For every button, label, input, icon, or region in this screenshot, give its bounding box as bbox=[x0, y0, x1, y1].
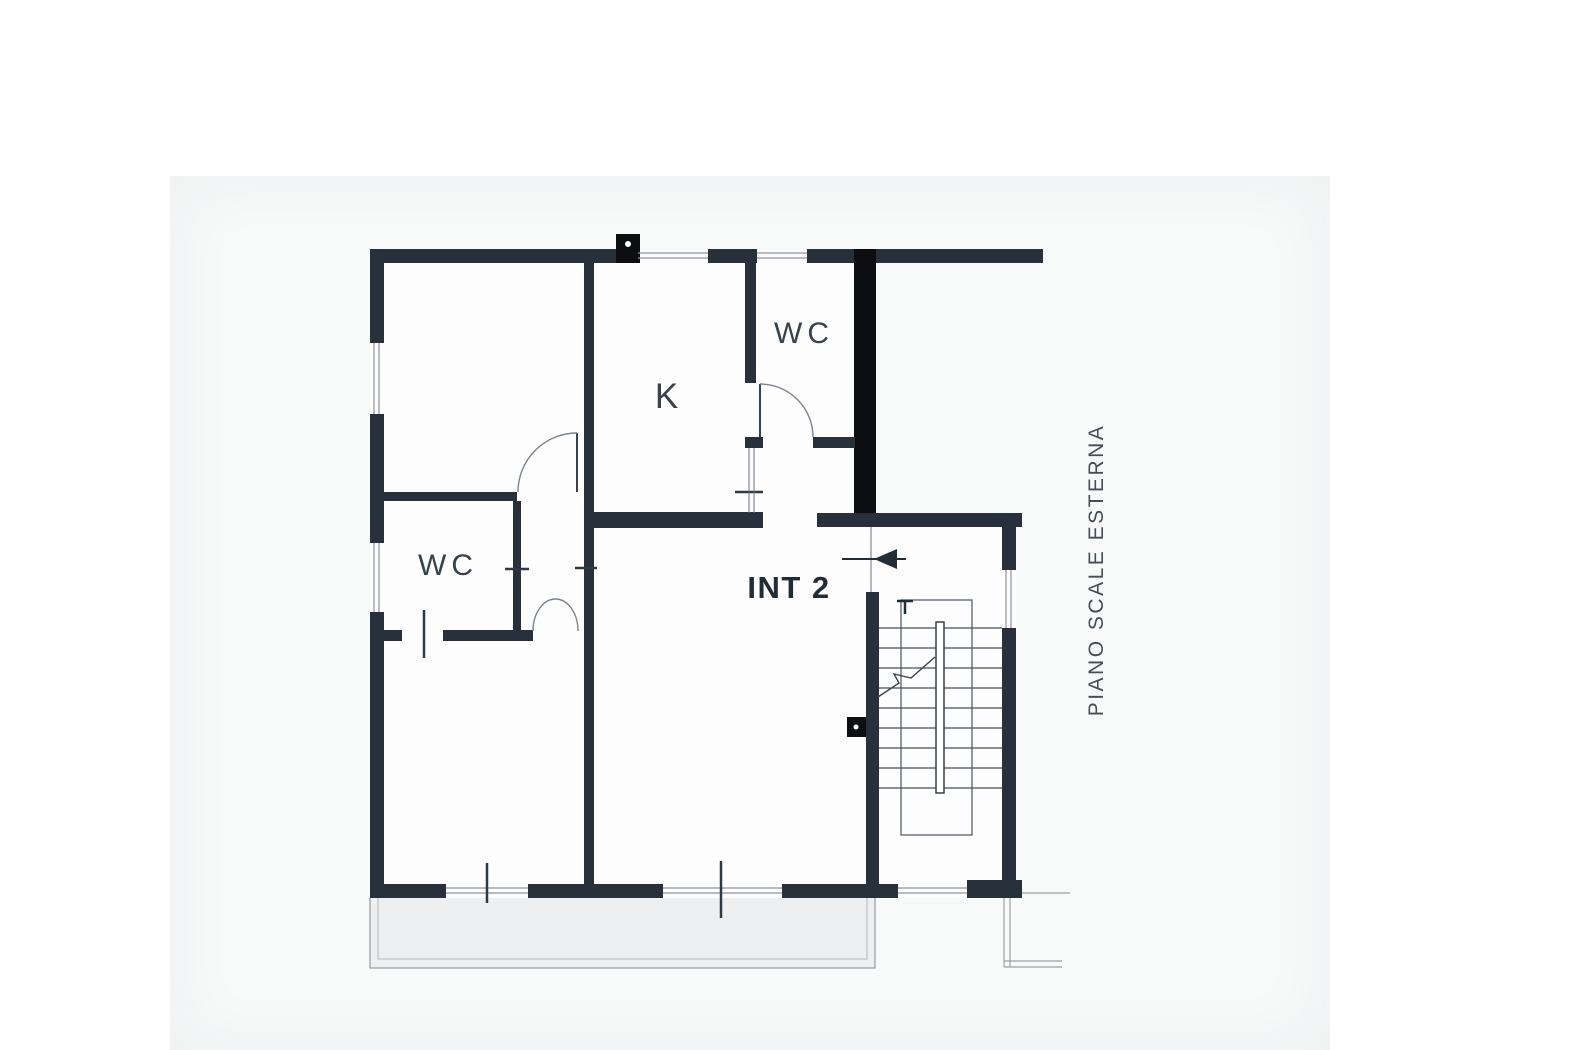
side-note-label: PIANO SCALE ESTERNA bbox=[1085, 424, 1109, 717]
floor-plan-drawing bbox=[0, 0, 1575, 1050]
external-landing bbox=[1004, 893, 1070, 967]
wc-left-label: WC bbox=[418, 549, 478, 583]
unit-label: INT 2 bbox=[747, 570, 830, 606]
balcony bbox=[370, 898, 875, 968]
wc-top-label: WC bbox=[774, 317, 834, 351]
floor-plan-page: WC K WC INT 2 PIANO SCALE ESTERNA bbox=[0, 0, 1575, 1050]
stair-stringer bbox=[936, 622, 944, 793]
kitchen-label: K bbox=[655, 377, 679, 417]
